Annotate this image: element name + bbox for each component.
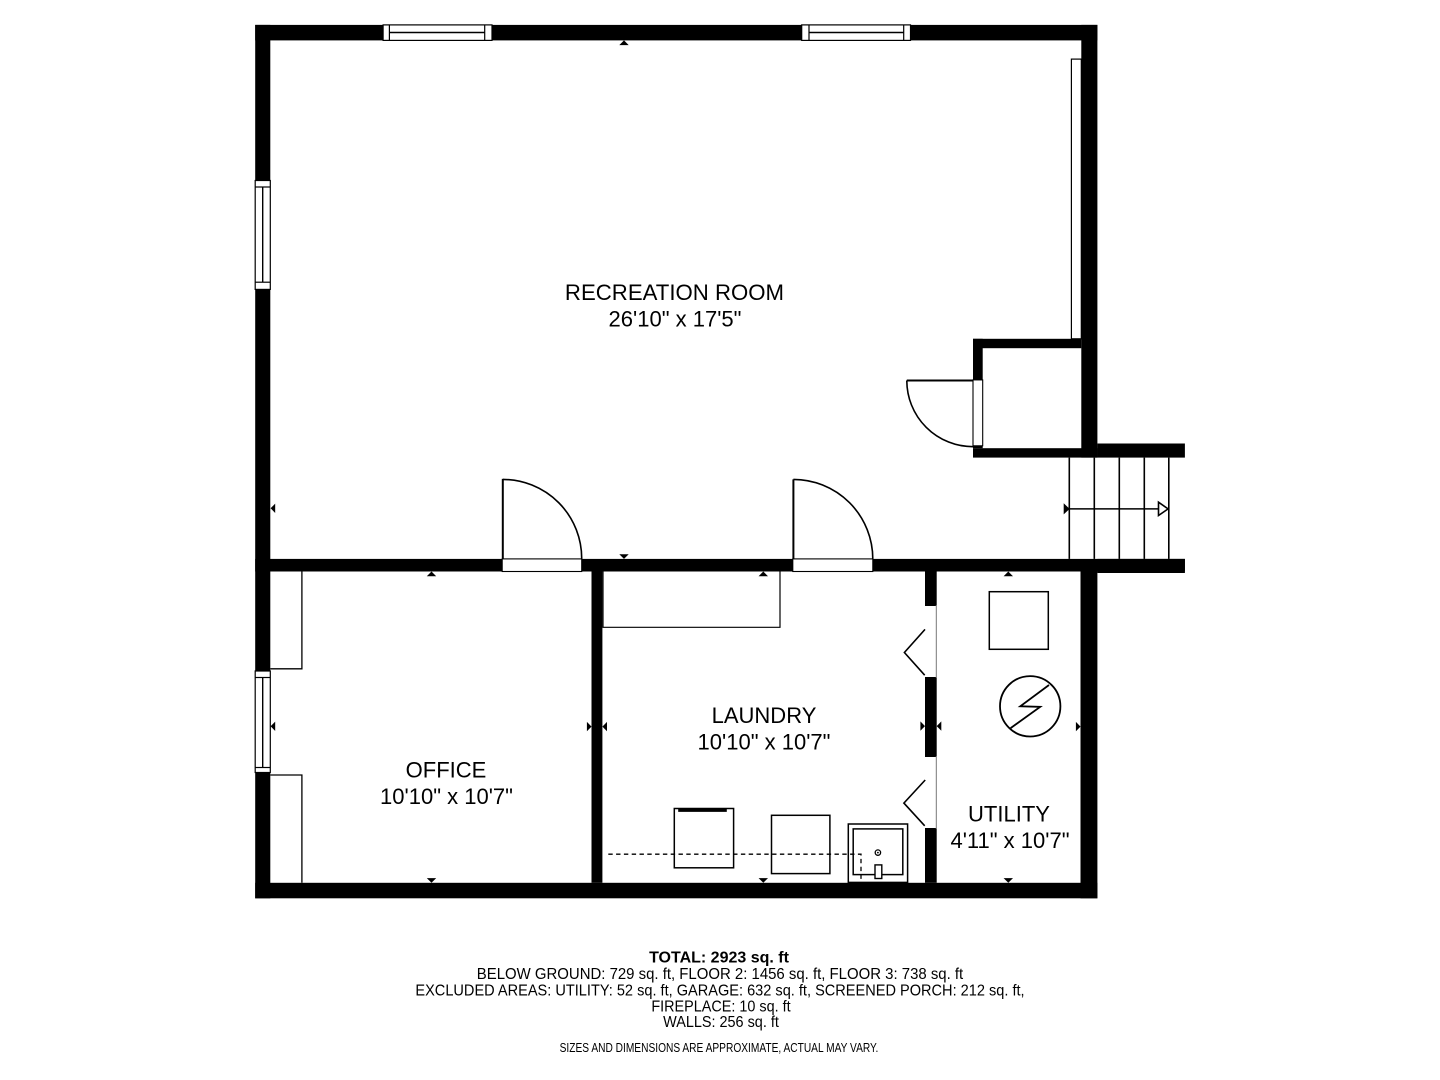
svg-text:SIZES AND DIMENSIONS ARE APPRO: SIZES AND DIMENSIONS ARE APPROXIMATE, AC… [560, 1041, 879, 1055]
svg-text:FIREPLACE: 10 sq. ft: FIREPLACE: 10 sq. ft [651, 999, 791, 1016]
svg-text:RECREATION ROOM: RECREATION ROOM [565, 280, 784, 305]
svg-text:LAUNDRY: LAUNDRY [712, 703, 817, 728]
svg-text:4'11" x 10'7": 4'11" x 10'7" [950, 828, 1069, 853]
svg-text:EXCLUDED AREAS: UTILITY: 52 sq: EXCLUDED AREAS: UTILITY: 52 sq. ft, GARA… [415, 983, 1024, 1000]
svg-text:10'10" x 10'7": 10'10" x 10'7" [380, 784, 513, 809]
svg-text:10'10" x 10'7": 10'10" x 10'7" [698, 729, 831, 754]
svg-text:TOTAL: 2923 sq. ft: TOTAL: 2923 sq. ft [649, 950, 790, 967]
svg-text:BELOW GROUND: 729 sq. ft, FLOO: BELOW GROUND: 729 sq. ft, FLOOR 2: 1456 … [477, 966, 964, 983]
svg-text:WALLS: 256 sq. ft: WALLS: 256 sq. ft [663, 1014, 779, 1031]
svg-text:OFFICE: OFFICE [406, 757, 487, 782]
svg-text:UTILITY: UTILITY [968, 801, 1050, 826]
svg-text:26'10" x 17'5": 26'10" x 17'5" [609, 306, 742, 331]
